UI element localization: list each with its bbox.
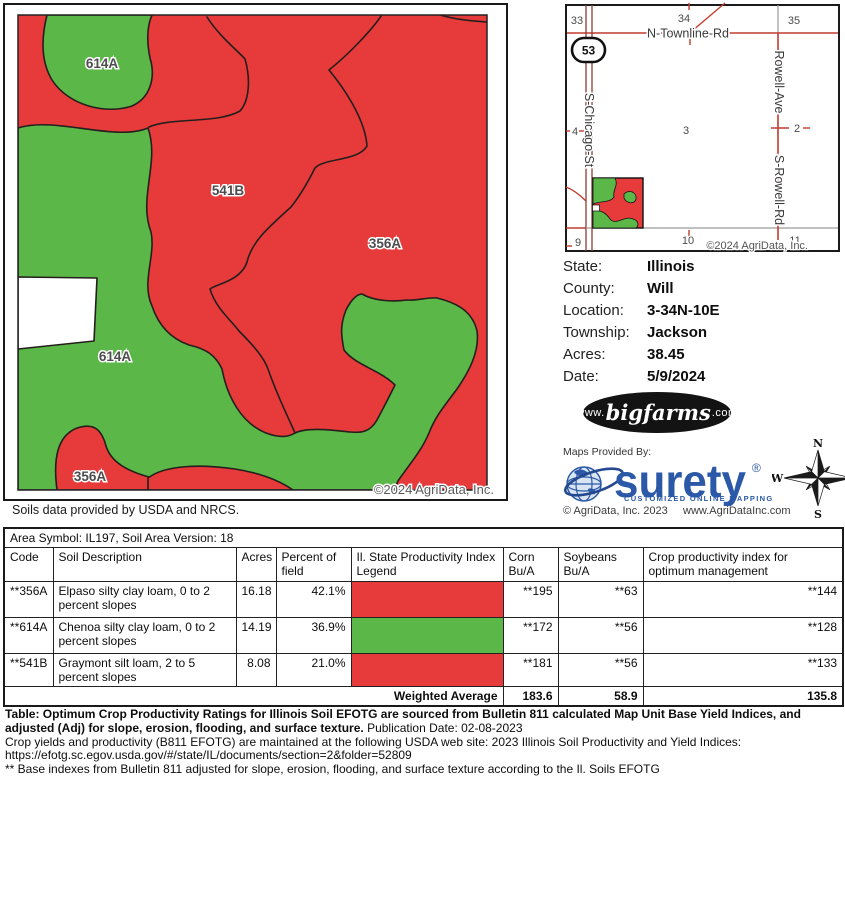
road-label-s-rowell: S-Rowell-Rd <box>772 155 786 225</box>
col-header-acres: Acres <box>236 548 276 582</box>
cell-acres: 14.19 <box>236 618 276 654</box>
soils-data-caption: Soils data provided by USDA and NRCS. <box>12 503 239 517</box>
soil-report-page: 614A 541B 356A 614A 356A ©2024 AgriData,… <box>0 0 845 900</box>
cell-corn: **181 <box>503 654 558 687</box>
table-row: **541B Graymont silt loam, 2 to 5 percen… <box>4 654 843 687</box>
road-label-rowell-ave: Rowell-Ave <box>772 51 786 114</box>
bigfarms-name: bigfarms <box>606 400 711 425</box>
info-value: Illinois <box>647 258 695 275</box>
inset-copyright: ©2024 AgriData, Inc. <box>706 240 808 252</box>
bigfarms-com: .com <box>712 407 738 419</box>
footnote-crop-yields: Crop yields and productivity (B811 EFOTG… <box>5 736 817 750</box>
info-label: County: <box>563 280 647 297</box>
cell-code: **356A <box>4 582 53 618</box>
bigfarms-www: www. <box>576 407 604 419</box>
section-10: 10 <box>682 235 694 247</box>
soil-label-614a-left: 614A <box>99 349 132 364</box>
compass-west-label: W <box>772 472 784 485</box>
svg-text:53: 53 <box>582 44 596 58</box>
cell-legend-swatch <box>351 582 503 618</box>
agridata-copyright: © AgriData, Inc. 2023 <box>563 505 668 517</box>
map-excluded-notch <box>18 277 97 349</box>
cell-description: Elpaso silty clay loam, 0 to 2 percent s… <box>53 582 236 618</box>
road-label-s-chicago: S-Chicago-St <box>582 93 596 168</box>
road-label-n-townline: N-Townline-Rd <box>647 27 729 41</box>
info-label: Date: <box>563 368 647 385</box>
table-header-row: Code Soil Description Acres Percent of f… <box>4 548 843 582</box>
info-row-township: Township:Jackson <box>563 324 720 346</box>
info-label: State: <box>563 258 647 275</box>
footnote-base-indexes: ** Base indexes from Bulletin 811 adjust… <box>5 763 817 777</box>
cell-description: Chenoa silty clay loam, 0 to 2 percent s… <box>53 618 236 654</box>
cell-percent: 21.0% <box>276 654 351 687</box>
section-35: 35 <box>788 15 800 27</box>
weighted-corn: 183.6 <box>503 687 558 707</box>
cell-corn: **195 <box>503 582 558 618</box>
table-area-row: Area Symbol: IL197, Soil Area Version: 1… <box>4 528 843 548</box>
info-value: 38.45 <box>647 346 685 363</box>
cell-crop-index: **128 <box>643 618 843 654</box>
cell-soybeans: **63 <box>558 582 643 618</box>
cell-crop-index: **144 <box>643 582 843 618</box>
weighted-average-label: Weighted Average <box>4 687 503 707</box>
soil-map-thumbnail <box>593 178 644 228</box>
map-copyright: ©2024 AgriData, Inc. <box>374 482 494 497</box>
footnote-url: https://efotg.sc.egov.usda.gov/#/state/I… <box>5 749 817 763</box>
cell-crop-index: **133 <box>643 654 843 687</box>
soil-label-614a-top: 614A <box>86 56 119 71</box>
section-33: 33 <box>571 15 583 27</box>
info-row-county: County:Will <box>563 280 720 302</box>
cell-corn: **172 <box>503 618 558 654</box>
info-row-acres: Acres:38.45 <box>563 346 720 368</box>
weighted-soybeans: 58.9 <box>558 687 643 707</box>
col-header-code: Code <box>4 548 53 582</box>
col-header-soybeans: Soybeans Bu/A <box>558 548 643 582</box>
cell-legend-swatch <box>351 654 503 687</box>
cell-legend-swatch <box>351 618 503 654</box>
info-row-state: State:Illinois <box>563 258 720 280</box>
col-header-legend: Il. State Productivity Index Legend <box>351 548 503 582</box>
weighted-average-row: Weighted Average 183.6 58.9 135.8 <box>4 687 843 707</box>
soil-label-356a-right: 356A <box>369 236 402 251</box>
compass-rose-icon: N S W E <box>772 436 845 524</box>
soil-map: 614A 541B 356A 614A 356A ©2024 AgriData,… <box>0 0 512 505</box>
soil-label-356a-bottom: 356A <box>74 469 107 484</box>
info-label: Township: <box>563 324 647 341</box>
section-34: 34 <box>678 13 690 25</box>
cell-soybeans: **56 <box>558 654 643 687</box>
cell-acres: 16.18 <box>236 582 276 618</box>
table-row: **614A Chenoa silty clay loam, 0 to 2 pe… <box>4 618 843 654</box>
cell-description: Graymont silt loam, 2 to 5 percent slope… <box>53 654 236 687</box>
footnote-publication-date: Publication Date: 02-08-2023 <box>367 721 522 735</box>
soil-productivity-table: Area Symbol: IL197, Soil Area Version: 1… <box>3 527 844 707</box>
route-shield-icon: 53 <box>572 38 605 62</box>
footnote-table-source: Table: Optimum Crop Productivity Ratings… <box>5 708 817 736</box>
bigfarms-logo: www. bigfarms .com <box>583 392 731 433</box>
section-2: 2 <box>794 123 800 135</box>
cell-percent: 36.9% <box>276 618 351 654</box>
location-inset-map: 53 33 34 35 4 3 2 9 10 11 N-Townline-Rd … <box>560 2 845 255</box>
info-label: Location: <box>563 302 647 319</box>
cell-code: **614A <box>4 618 53 654</box>
property-info: State:Illinois County:Will Location:3-34… <box>563 258 720 390</box>
soil-label-541b: 541B <box>212 183 245 198</box>
info-value: Will <box>647 280 674 297</box>
col-header-description: Soil Description <box>53 548 236 582</box>
compass-south-label: S <box>814 508 822 521</box>
weighted-crop-index: 135.8 <box>643 687 843 707</box>
section-4: 4 <box>572 126 578 138</box>
col-header-crop-index: Crop productivity index for optimum mana… <box>643 548 843 582</box>
surety-registered-mark: ® <box>752 461 761 475</box>
surety-tagline: CUSTOMIZED ONLINE MAPPING <box>624 494 773 503</box>
table-row: **356A Elpaso silty clay loam, 0 to 2 pe… <box>4 582 843 618</box>
info-value: 5/9/2024 <box>647 368 705 385</box>
footnotes: Table: Optimum Crop Productivity Ratings… <box>5 708 817 777</box>
section-3: 3 <box>683 125 689 137</box>
info-row-date: Date:5/9/2024 <box>563 368 720 390</box>
info-value: 3-34N-10E <box>647 302 720 319</box>
col-header-corn: Corn Bu/A <box>503 548 558 582</box>
compass-north-label: N <box>813 437 823 450</box>
info-row-location: Location:3-34N-10E <box>563 302 720 324</box>
cell-percent: 42.1% <box>276 582 351 618</box>
cell-code: **541B <box>4 654 53 687</box>
area-symbol-line: Area Symbol: IL197, Soil Area Version: 1… <box>4 528 843 548</box>
section-9: 9 <box>575 237 581 249</box>
info-label: Acres: <box>563 346 647 363</box>
col-header-percent: Percent of field <box>276 548 351 582</box>
info-value: Jackson <box>647 324 707 341</box>
cell-acres: 8.08 <box>236 654 276 687</box>
cell-soybeans: **56 <box>558 618 643 654</box>
